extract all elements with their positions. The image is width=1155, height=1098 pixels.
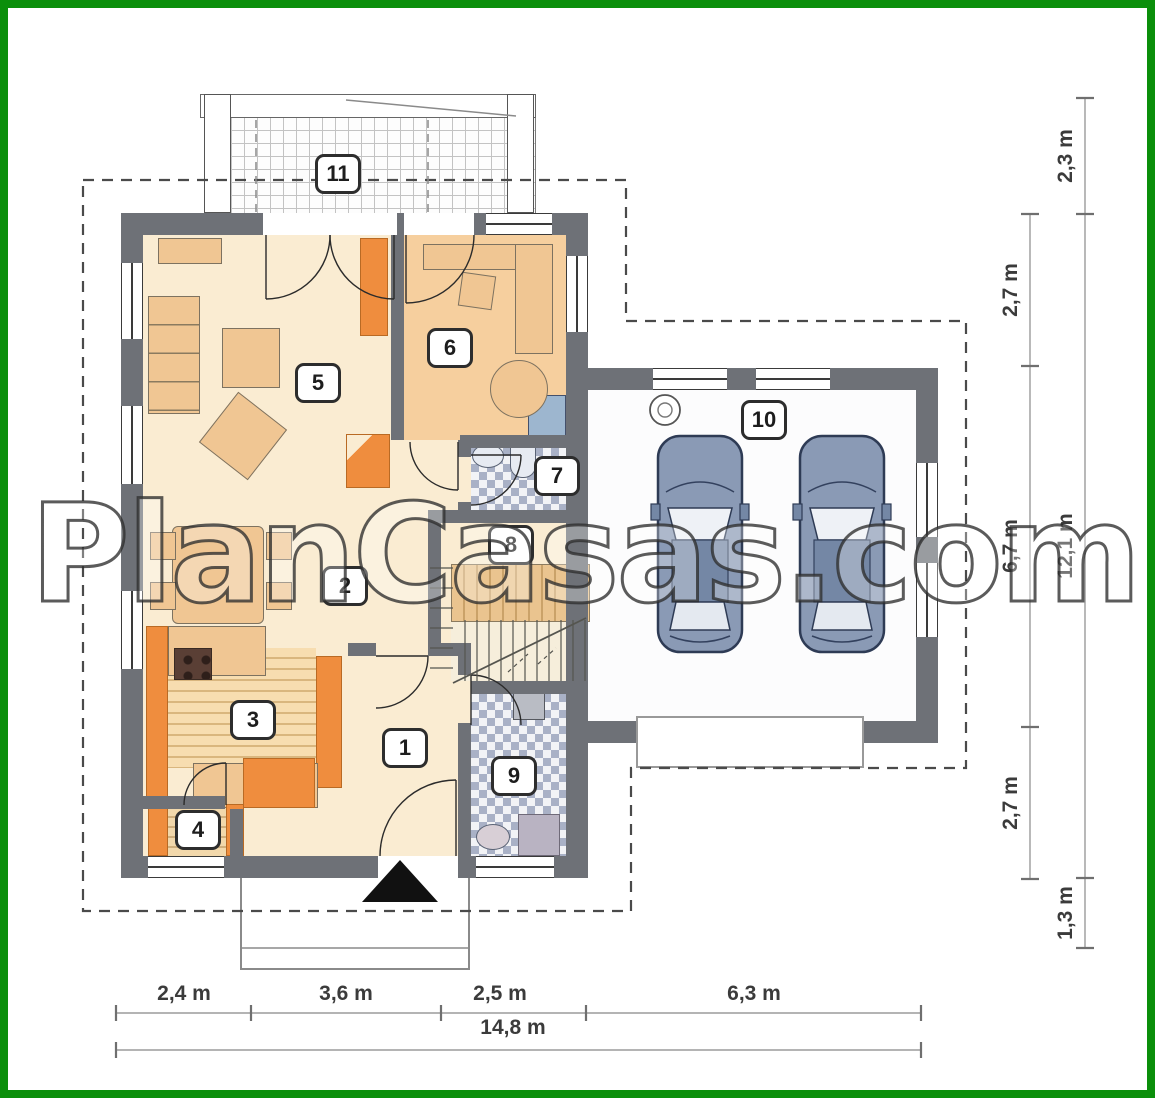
garage-door-slab [636,716,864,768]
dining-table [172,526,264,624]
partition-room6-hall [460,435,566,448]
floor-plan-canvas: 1 2 3 4 5 6 7 8 9 10 11 2,7 m 6,7 m 2,7 … [8,8,1147,1090]
dim-right-inner-2: 6,7 m [999,519,1023,573]
window-pantry-bottom [148,856,224,878]
kitchen-counter-left [146,626,168,808]
window-room6-top [486,213,552,235]
round-rug [490,360,548,418]
stove [174,648,212,680]
room-badge-2: 2 [322,566,368,606]
dim-right-outer-1: 2,3 m [1054,129,1078,183]
window-living-left-2 [121,406,143,484]
room-badge-5: 5 [295,363,341,403]
partition-room9-west-a [458,643,471,675]
partition-bath-south [428,510,566,523]
window-garage-top-1 [653,368,727,390]
partition-room9-north [471,681,566,694]
desk-side [515,244,553,354]
dining-chair [150,532,176,560]
desk-chair [458,272,496,310]
sofa [148,296,200,414]
room6-terrace-door-opening [404,213,474,235]
window-garage-right-2 [916,563,938,637]
room-badge-6: 6 [427,328,473,368]
terrace-floor-grid [204,116,536,216]
utility-sink [476,824,510,850]
entrance-arrow-icon [362,860,438,902]
partition-pantry-north [143,796,225,809]
dim-right-inner-1: 2,7 m [999,263,1023,317]
kitchen-cabinet-bottom [243,758,315,808]
dim-bottom-4: 6,3 m [727,982,781,1006]
room-badge-1: 1 [382,728,428,768]
window-garage-right-1 [916,463,938,537]
window-living-left-1 [121,263,143,339]
wall-garage-top [566,368,938,390]
dining-chair [266,532,292,560]
wall-garage-right [916,368,938,743]
dim-right-outer-2: 12,1 m [1054,513,1078,578]
dining-chair [266,582,292,610]
window-room6-right [566,256,588,332]
wardrobe [360,238,388,336]
dim-bottom-1: 2,4 m [157,982,211,1006]
fireplace [346,434,390,488]
window-utility-bottom [476,856,554,878]
terrace-column-right [507,94,534,213]
dim-bottom-total: 14,8 m [480,1016,545,1040]
terrace-column-left [204,94,231,213]
sideboard [158,238,222,264]
partition-living-room6 [391,235,404,440]
terrace-door-opening [263,213,397,235]
partition-pantry-east [230,809,243,856]
partition-room1-north-west [348,643,376,656]
dim-right-inner-3: 2,7 m [999,776,1023,830]
partition-room1-north-east [428,643,458,656]
partition-hall-west [428,510,441,643]
coffee-table [222,328,280,388]
floor-plan-page: { "watermark": { "text": "PlanCasas.com"… [0,0,1155,1098]
kitchen-peninsula [316,656,342,788]
partition-bath-west-a [458,440,471,457]
washing-machine [518,814,560,856]
window-dining-left [121,591,143,669]
room-badge-10: 10 [741,400,787,440]
partition-room9-west-b [458,723,471,856]
room-badge-9: 9 [491,756,537,796]
dim-bottom-3: 2,5 m [473,982,527,1006]
toilet [510,446,536,478]
room-badge-4: 4 [175,810,221,850]
dim-bottom-2: 3,6 m [319,982,373,1006]
room-badge-8: 8 [488,525,534,565]
window-garage-top-2 [756,368,830,390]
room-badge-11: 11 [315,154,361,194]
terrace-beam [200,94,536,118]
dining-chair [150,582,176,610]
room-badge-7: 7 [534,456,580,496]
room-badge-3: 3 [230,700,276,740]
pantry-shelf-left [148,808,168,856]
dim-right-outer-3: 1,3 m [1054,886,1078,940]
